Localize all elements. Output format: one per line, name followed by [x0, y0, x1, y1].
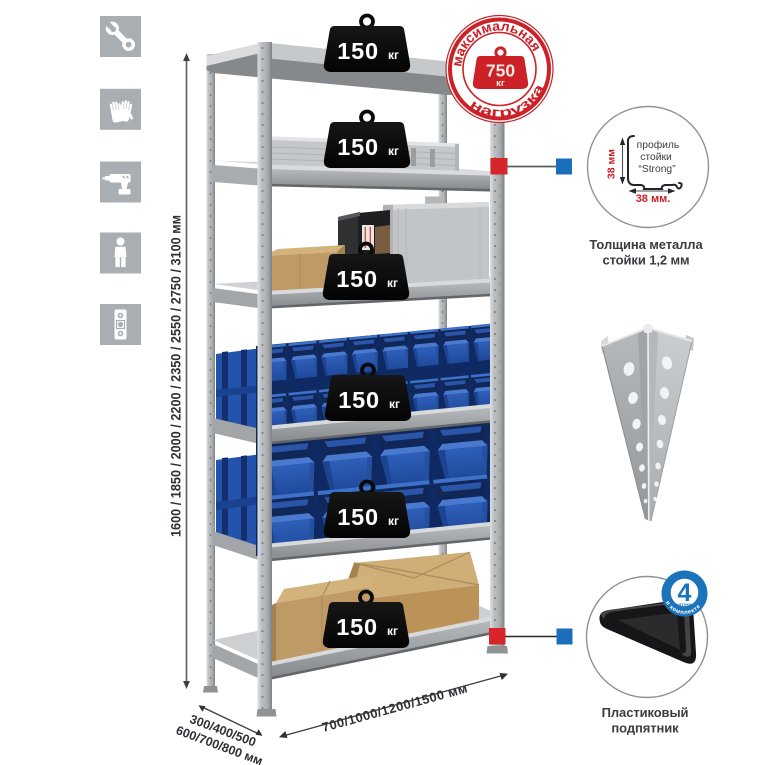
svg-text:38 мм.: 38 мм. [636, 193, 671, 205]
svg-text:стойки: стойки [640, 152, 672, 163]
svg-text:700/1000/1200/1500 мм: 700/1000/1200/1500 мм [320, 680, 469, 734]
svg-text:Толщина металла: Толщина металла [589, 237, 703, 252]
svg-text:профиль: профиль [637, 139, 680, 151]
svg-text:“Strong”: “Strong” [638, 164, 676, 175]
svg-text:Пластиковый: Пластиковый [602, 705, 689, 720]
svg-text:38 мм: 38 мм [606, 149, 618, 179]
svg-text:штуки: штуки [677, 603, 692, 608]
svg-text:подпятник: подпятник [611, 721, 679, 736]
svg-text:1600 / 1850 / 2000 / 2200 / 23: 1600 / 1850 / 2000 / 2200 / 2350 / 2550 … [168, 215, 184, 537]
svg-text:стойки 1,2 мм: стойки 1,2 мм [602, 253, 689, 268]
svg-text:кг: кг [496, 78, 505, 89]
